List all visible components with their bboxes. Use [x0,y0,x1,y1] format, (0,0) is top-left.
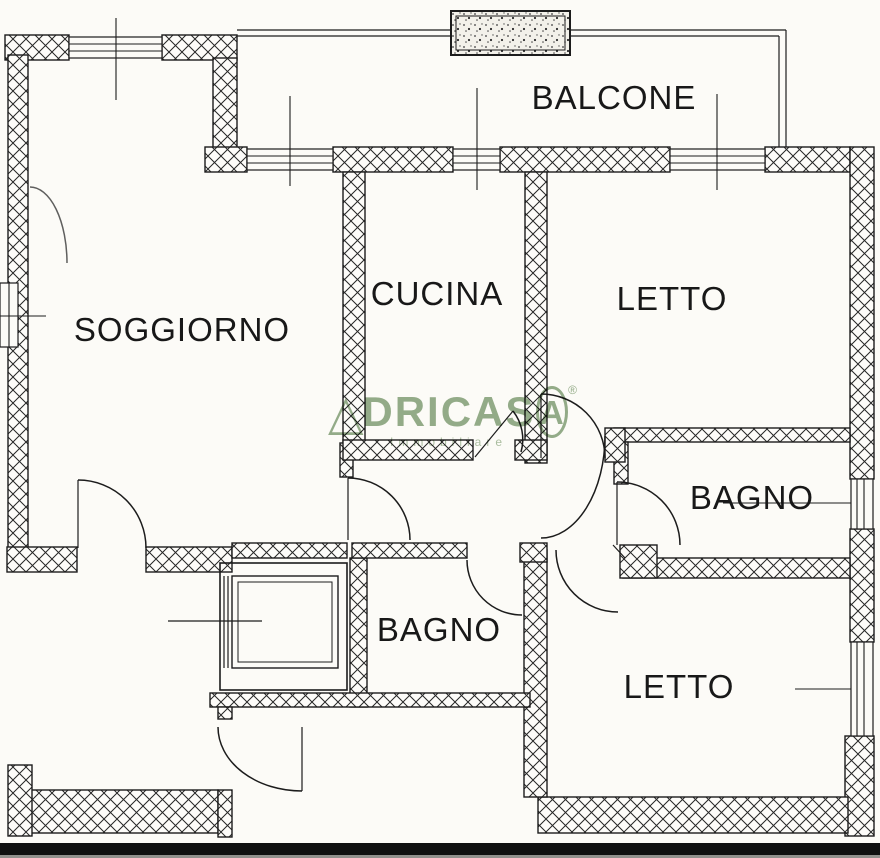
floor-plan-drawing: SOGGIORNO CUCINA LETTO BALCONE BAGNO BAG… [0,0,880,858]
room-label-soggiorno: SOGGIORNO [74,311,290,348]
room-label-letto-bottom: LETTO [624,668,735,705]
room-label-cucina: CUCINA [371,275,504,312]
room-label-balcone: BALCONE [532,79,697,116]
room-label-letto-top: LETTO [617,280,728,317]
room-label-bagno-bottom: BAGNO [377,611,501,648]
floor-plan-page: SOGGIORNO CUCINA LETTO BALCONE BAGNO BAG… [0,0,880,858]
scan-bottom-bar [0,843,880,855]
room-label-bagno-top: BAGNO [690,479,814,516]
balcony-planter [451,11,570,55]
